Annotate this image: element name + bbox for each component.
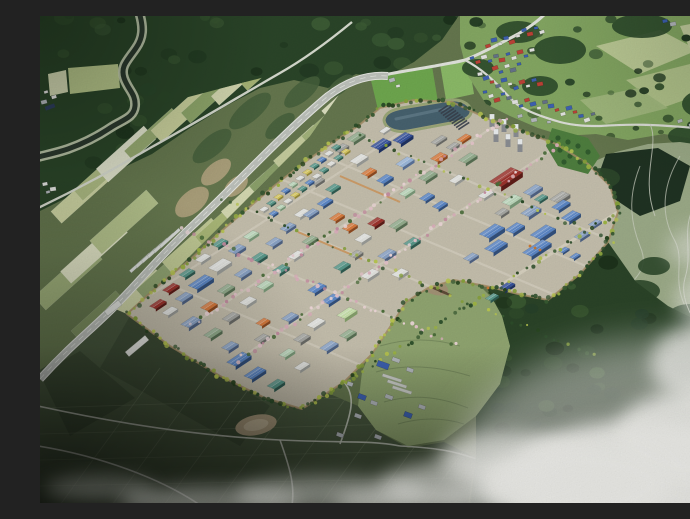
scene-canvas xyxy=(40,16,690,503)
aerial-render xyxy=(40,16,690,503)
grain-overlay xyxy=(40,16,690,503)
